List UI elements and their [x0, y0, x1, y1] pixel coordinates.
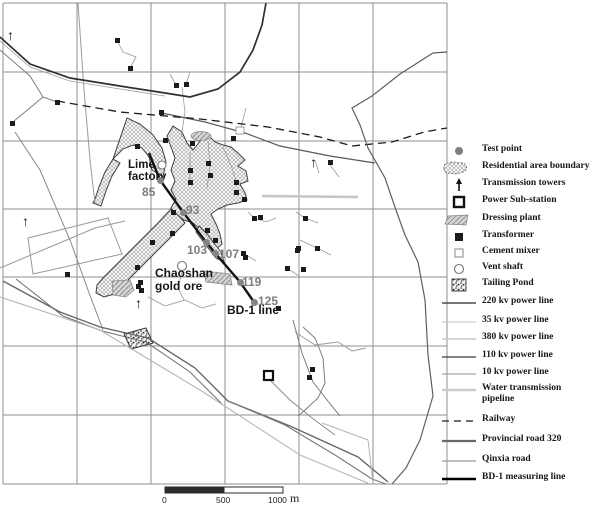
map-grid: [3, 3, 447, 484]
transformer-marker: [174, 83, 179, 88]
transformer-marker: [150, 240, 155, 245]
transformer-marker: [55, 100, 60, 105]
transformer-marker: [276, 306, 281, 311]
transformer-marker: [242, 197, 247, 202]
transformer-marker: [115, 38, 120, 43]
water-pipeline-line: [262, 196, 358, 197]
transformer-marker: [307, 375, 312, 380]
transmission-tower-marker: ↑: [22, 214, 29, 228]
qinxia-road-line: [352, 52, 447, 484]
transformer-marker: [128, 66, 133, 71]
test-point-number: 119: [242, 276, 261, 288]
test-point-number: 107: [219, 248, 239, 260]
road-bundle: [0, 279, 388, 484]
transformer-marker: [252, 216, 257, 221]
scale-tick-0: 0: [162, 495, 167, 505]
transformer-marker: [213, 238, 218, 243]
scale-unit: m: [290, 491, 299, 505]
transformer-marker: [231, 136, 236, 141]
scale-bar: [165, 487, 283, 493]
transformer-marker: [190, 141, 195, 146]
transformer-marker: [258, 215, 263, 220]
transformer-marker: [184, 82, 189, 87]
test-point-marker: [251, 299, 258, 306]
dressing-plant-shape: [191, 132, 211, 141]
transmission-tower-marker: ↑: [135, 296, 142, 310]
test-point-number: 85: [142, 186, 155, 198]
test-point-number: 93: [186, 204, 199, 216]
transformer-marker: [188, 168, 193, 173]
scale-tick-1000: 1000: [268, 495, 287, 505]
power-substation-marker: [264, 371, 273, 380]
transformer-marker: [205, 228, 210, 233]
transformer-marker: [315, 246, 320, 251]
transformer-marker: [295, 248, 300, 253]
transformer-marker: [208, 173, 213, 178]
transformer-marker: [234, 190, 239, 195]
transformer-marker: [170, 231, 175, 236]
scale-tick-500: 500: [216, 495, 230, 505]
test-point-marker: [212, 250, 219, 257]
transformer-marker: [159, 110, 164, 115]
transmission-tower-marker: ↑: [7, 28, 14, 42]
provincial-road-320: [0, 3, 266, 97]
cement-mixer-marker: [236, 127, 244, 134]
label-chaoshan-gold-ore: Chaoshan gold ore: [155, 267, 221, 293]
transformer-marker: [301, 267, 306, 272]
map-canvas: [0, 0, 600, 505]
transformer-marker: [135, 265, 140, 270]
transformer-marker: [234, 180, 239, 185]
test-point-marker: [157, 177, 164, 184]
transmission-tower-marker: ↑: [310, 155, 317, 169]
transformer-marker: [328, 160, 333, 165]
transformer-marker: [136, 284, 141, 289]
transformer-marker: [206, 161, 211, 166]
railway-line: [57, 101, 447, 146]
transformer-marker: [171, 210, 176, 215]
transformer-marker: [303, 216, 308, 221]
transformer-marker: [241, 251, 246, 256]
transformer-marker: [163, 138, 168, 143]
map-figure: Lime factory Chaoshan gold ore BD-1 line…: [0, 0, 600, 505]
label-lime-factory: Lime factory: [128, 160, 174, 183]
transformer-marker: [188, 180, 193, 185]
transformer-marker: [310, 367, 315, 372]
test-point-number: 103: [187, 244, 207, 256]
transformer-marker: [10, 121, 15, 126]
transformer-marker: [135, 144, 140, 149]
dressing-plant-shape: [112, 280, 134, 297]
transformer-marker: [65, 272, 70, 277]
transformer-marker: [285, 266, 290, 271]
